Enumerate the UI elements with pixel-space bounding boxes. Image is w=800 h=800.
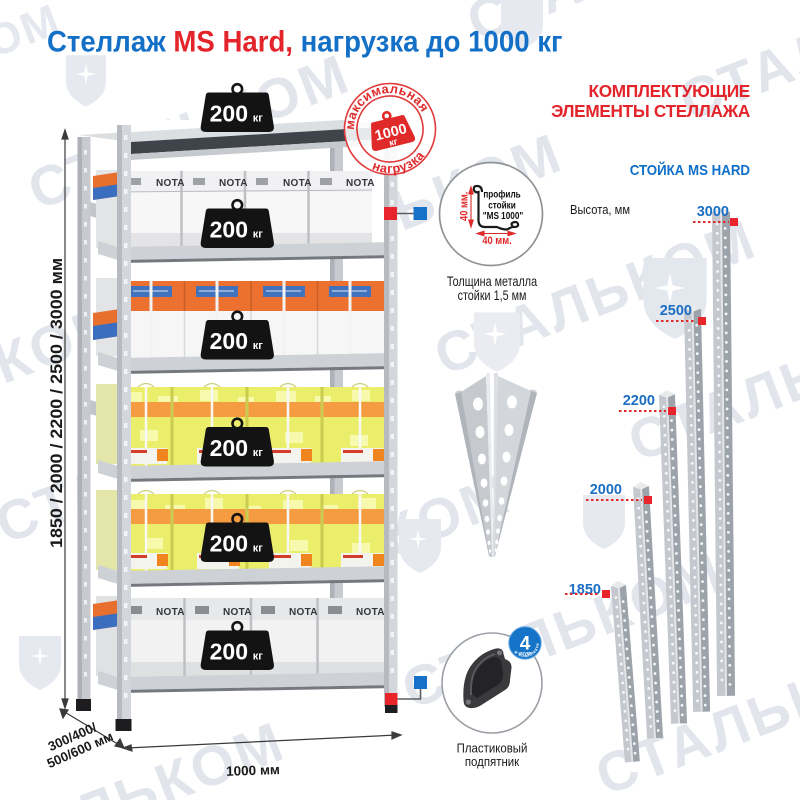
svg-text:200: 200 (210, 217, 248, 243)
svg-text:ЭЛЕМЕНТЫ СТЕЛЛАЖА: ЭЛЕМЕНТЫ СТЕЛЛАЖА (551, 101, 750, 121)
svg-text:200: 200 (210, 639, 248, 665)
svg-text:кг: кг (253, 228, 264, 240)
svg-text:Стеллаж MS Hard, нагрузка до 1: Стеллаж MS Hard, нагрузка до 1000 кг (47, 25, 563, 58)
svg-text:1000 мм: 1000 мм (226, 762, 280, 779)
svg-text:стойки 1,5 мм: стойки 1,5 мм (458, 288, 527, 303)
svg-text:NOTA: NOTA (156, 178, 185, 189)
svg-text:подпятник: подпятник (465, 754, 520, 769)
svg-text:NOTA: NOTA (223, 607, 252, 618)
svg-text:NOTA: NOTA (156, 607, 185, 618)
svg-text:КОМПЛЕКТУЮЩИЕ: КОМПЛЕКТУЮЩИЕ (589, 81, 750, 101)
svg-text:NOTA: NOTA (356, 607, 385, 618)
svg-text:кг: кг (253, 340, 264, 352)
svg-text:кг: кг (253, 542, 264, 554)
svg-text:NOTA: NOTA (346, 178, 375, 189)
svg-text:кг: кг (253, 447, 264, 459)
svg-text:NOTA: NOTA (289, 607, 318, 618)
svg-text:2500: 2500 (660, 303, 692, 319)
svg-text:40 мм.: 40 мм. (459, 191, 471, 221)
svg-text:2200: 2200 (623, 393, 655, 409)
svg-text:"MS 1000": "MS 1000" (483, 209, 524, 221)
svg-text:1850: 1850 (569, 582, 601, 598)
svg-text:3000: 3000 (697, 204, 729, 220)
svg-text:кг: кг (253, 650, 264, 662)
svg-text:NOTA: NOTA (219, 178, 248, 189)
svg-text:Высота, мм: Высота, мм (570, 202, 630, 217)
svg-text:СТОЙКА MS HARD: СТОЙКА MS HARD (630, 160, 750, 179)
svg-text:200: 200 (210, 328, 248, 354)
svg-text:кг: кг (253, 112, 264, 124)
svg-text:200: 200 (210, 531, 248, 557)
svg-text:NOTA: NOTA (283, 178, 312, 189)
svg-text:1850 / 2000 / 2200 / 2500 / 30: 1850 / 2000 / 2200 / 2500 / 3000 мм (47, 258, 66, 548)
svg-text:200: 200 (210, 101, 248, 127)
svg-text:40 мм.: 40 мм. (482, 235, 512, 247)
svg-text:200: 200 (210, 435, 248, 461)
svg-text:2000: 2000 (590, 482, 622, 498)
